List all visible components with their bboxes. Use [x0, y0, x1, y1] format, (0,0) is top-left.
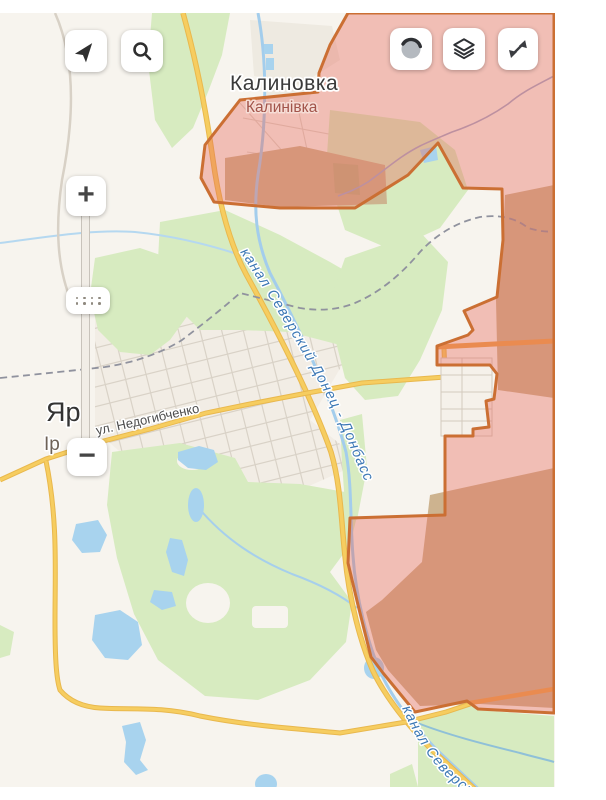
notch-settlement [441, 358, 492, 436]
layers-button[interactable] [443, 28, 485, 70]
top-margin [0, 0, 606, 13]
search-button[interactable] [121, 30, 163, 72]
zoom-in-button[interactable]: + [66, 176, 106, 216]
zoom-slider-handle[interactable] [66, 287, 110, 314]
place-label-partial-2: Ір [44, 434, 60, 455]
fullscreen-button[interactable] [498, 28, 538, 70]
expand-arrows-icon [506, 37, 530, 61]
globe-circle-icon [398, 36, 424, 62]
map-app-screen: Калиновка Калинівка Яр Ір ул. Недогибчен… [0, 0, 606, 800]
search-icon [130, 39, 154, 63]
settlement-label-ru: Калиновка [230, 72, 338, 95]
bottom-margin [0, 787, 606, 800]
zoom-out-label: − [78, 441, 96, 471]
navigation-arrow-icon [74, 39, 98, 63]
settlement-label-uk: Калинівка [246, 99, 318, 116]
place-label-partial-1: Яр [46, 397, 81, 427]
zoom-out-button[interactable]: − [67, 438, 107, 476]
zoom-slider-track[interactable] [81, 214, 90, 458]
right-margin [555, 0, 606, 800]
zoom-in-label: + [77, 180, 95, 210]
drag-dots-icon [76, 297, 101, 305]
map-type-button[interactable] [390, 28, 432, 70]
locate-button[interactable] [65, 30, 107, 72]
layers-icon [451, 36, 477, 62]
